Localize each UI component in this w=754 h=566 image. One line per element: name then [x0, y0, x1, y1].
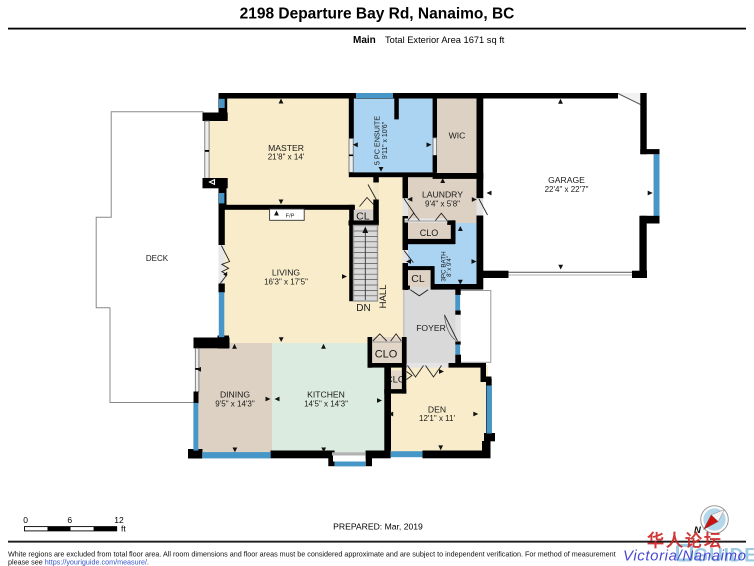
- svg-text:Total Exterior Area 1671 sq ft: Total Exterior Area 1671 sq ft: [385, 35, 505, 45]
- svg-text:HALL: HALL: [378, 285, 389, 309]
- svg-text:please see https://youriguide.: please see https://youriguide.com/measur…: [8, 558, 149, 566]
- svg-text:PREPARED: Mar, 2019: PREPARED: Mar, 2019: [333, 522, 423, 532]
- svg-text:9'5" x 14'3": 9'5" x 14'3": [215, 400, 255, 409]
- svg-text:3PC BATH: 3PC BATH: [441, 251, 448, 282]
- svg-text:0: 0: [23, 515, 28, 525]
- svg-text:WIC: WIC: [449, 130, 466, 140]
- svg-text:DECK: DECK: [146, 254, 169, 263]
- svg-text:CLO: CLO: [420, 228, 439, 238]
- svg-text:KITCHEN: KITCHEN: [307, 390, 345, 400]
- svg-text:12'1" x 11': 12'1" x 11': [419, 414, 455, 423]
- svg-text:DINING: DINING: [220, 390, 250, 400]
- svg-text:14'5" x 14'3": 14'5" x 14'3": [304, 400, 348, 409]
- svg-text:DN: DN: [356, 303, 370, 314]
- svg-text:22'4" x 22'7": 22'4" x 22'7": [545, 185, 589, 194]
- svg-text:Main: Main: [353, 35, 376, 46]
- svg-text:LIVING: LIVING: [272, 267, 300, 277]
- svg-text:16'3" x 17'5": 16'3" x 17'5": [264, 277, 308, 286]
- svg-text:DEN: DEN: [428, 405, 446, 415]
- svg-text:GARAGE: GARAGE: [548, 175, 585, 185]
- svg-text:5 PC ENSUITE: 5 PC ENSUITE: [373, 116, 382, 165]
- svg-text:6: 6: [67, 515, 72, 525]
- svg-text:FOYER: FOYER: [416, 323, 446, 333]
- svg-text:21'8" x 14': 21'8" x 14': [268, 152, 305, 161]
- svg-text:LAUNDRY: LAUNDRY: [422, 189, 463, 199]
- svg-text:9'4" x 5'8": 9'4" x 5'8": [425, 199, 460, 208]
- svg-text:F/P: F/P: [286, 214, 295, 220]
- svg-text:Victoria/Nanaimo: Victoria/Nanaimo: [623, 548, 747, 565]
- svg-text:8' x 9'4": 8' x 9'4": [447, 256, 453, 277]
- svg-text:CLO: CLO: [375, 349, 398, 361]
- svg-text:CL: CL: [411, 273, 425, 285]
- svg-text:ft: ft: [121, 524, 126, 534]
- svg-text:2198 Departure Bay Rd, Nanaimo: 2198 Departure Bay Rd, Nanaimo, BC: [240, 6, 515, 23]
- svg-text:9'11" x 10'6": 9'11" x 10'6": [382, 121, 389, 159]
